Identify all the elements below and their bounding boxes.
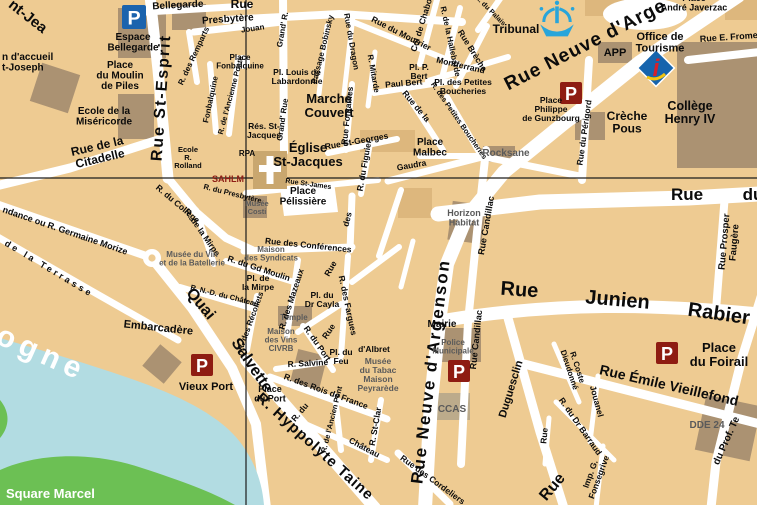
place-label-malbec-line: Place [417,137,444,148]
poi-label-rocksane: Rocksane [482,148,530,159]
street-label-junien-rue: Rue [500,278,539,303]
poi-label-eglise-st-jacques-line: Église [289,140,327,155]
poi-label-ccas: CCAS [438,404,467,415]
place-label-pelissiere-line: Pélissière [280,197,327,208]
poi-label-college-henry-iv: CollègeHenry IV [665,99,716,126]
poi-label-eglise-st-jacques-line: St-Jacques [273,154,342,169]
street-label-rue-fragment: Rue [231,0,254,11]
poi-label-tribunal: Tribunal [493,22,540,36]
poi-label-ecole-misericorde: Ecole de laMiséricorde [76,106,133,128]
poi-label-maison-des-vins-line: CIVRB [269,344,294,353]
street-label-du-east: du [743,185,757,204]
parking-letter: P [196,356,208,376]
poi-label-college-henry-iv-line: Henry IV [665,112,716,126]
map-canvas: PPPPPi nt-JeaBellegardeRuePresbytèreJoua… [0,0,757,505]
poi-label-app: APP [604,47,627,59]
place-label-foirail-line: du Foirail [690,354,749,369]
place-label-andre-javerzac-line: André Javerzac [661,3,728,13]
poi-label-ecole-misericorde-line: Ecole de la [78,106,131,117]
place-label-gunzbourg-line: de Gunzbourg [522,113,580,123]
poi-label-musee-costi-line: Costi [248,207,267,216]
parking-letter: P [453,362,465,382]
poi-label-horizon-habitat-line: Horizon [447,208,481,218]
parking-icon-foirail: P [656,342,678,364]
place-label-moulin-de-piles-line: Place [107,60,134,71]
city-map: PPPPPi nt-JeaBellegardeRuePresbytèreJoua… [0,0,757,505]
poi-label-espace-bellegarde-line: Espace [115,32,150,43]
place-label-malbec: PlaceMalbec [413,137,447,159]
poi-label-espace-bellegarde-line: Bellegarde [107,43,159,54]
place-label-malbec-line: Malbec [413,148,447,159]
poi-label-ecole-rolland-line: Rolland [174,161,202,170]
poi-label-college-henry-iv-line: Collège [667,99,712,113]
parking-letter: P [127,8,140,30]
street-label-salvine: R. Salvine [287,357,328,369]
street-label-rue-east: Rue [671,185,703,204]
parking-icon-gunzbourg: P [560,82,582,104]
place-label-foirail-line: Place [702,340,736,355]
poi-label-accueil-st-joseph-line: t-Joseph [2,63,44,74]
poi-label-office-de-tourisme: Office deTourisme [636,31,685,55]
poi-label-musee-costi: MuséeCosti [245,199,268,216]
poi-label-creche-pous: CrèchePous [607,109,648,136]
poi-label-rpa: RPA [239,149,256,158]
place-label-andre-javerzac: PlaceAndré Javerzac [661,0,728,13]
poi-label-sahlm: SAHLM [212,174,244,184]
poi-label-vieux-port: Vieux Port [179,381,234,393]
poi-label-musee-du-tabac-line: Peyrarède [357,383,398,393]
poi-label-mairie: Mairie [428,319,457,330]
place-label-moulin-de-piles-line: du Moulin [96,71,143,82]
poi-label-musee-du-vin-line: et de la Batellerie [159,258,225,267]
poi-label-horizon-habitat-line: Habitat [449,218,480,228]
place-label-mirpe-line: la Mirpe [242,282,274,292]
place-label-moulin-de-piles-line: de Piles [101,81,139,92]
parking-icon-espace-bellegarde: P [122,5,146,30]
poi-label-office-de-tourisme-line: Office de [636,31,683,43]
parking-letter: P [661,344,673,364]
street-label-rue-fragment-4: Rue [538,427,549,444]
poi-label-dde-24: DDE 24 [689,420,724,431]
park-label-square-marcel: Square Marcel [6,486,95,501]
poi-label-office-de-tourisme-line: Tourisme [636,43,685,55]
poi-label-horizon-habitat: HorizonHabitat [447,208,481,228]
poi-label-police-municipale-line: Municipale [432,346,474,355]
place-label-dr-cayla-line: Dr Cayla [305,299,340,309]
parking-icon-vieux-port: P [191,354,213,376]
poi-label-ecole-misericorde-line: Miséricorde [76,117,133,128]
street-label-albret: d'Albret [358,344,390,354]
poi-label-musee-du-vin: Musée du Vinet de la Batellerie [159,250,225,267]
place-label-feu-line: Feu [333,356,348,366]
poi-label-maison-des-vins: Maisondes VinsCIVRB [265,327,298,353]
parking-icon-mairie: P [448,360,470,382]
poi-label-creche-pous-line: Pous [612,122,642,136]
parking-letter: P [565,84,577,104]
place-label-pelissiere-line: Place [290,186,317,197]
poi-label-accueil-st-joseph-line: n d'accueil [2,52,54,63]
